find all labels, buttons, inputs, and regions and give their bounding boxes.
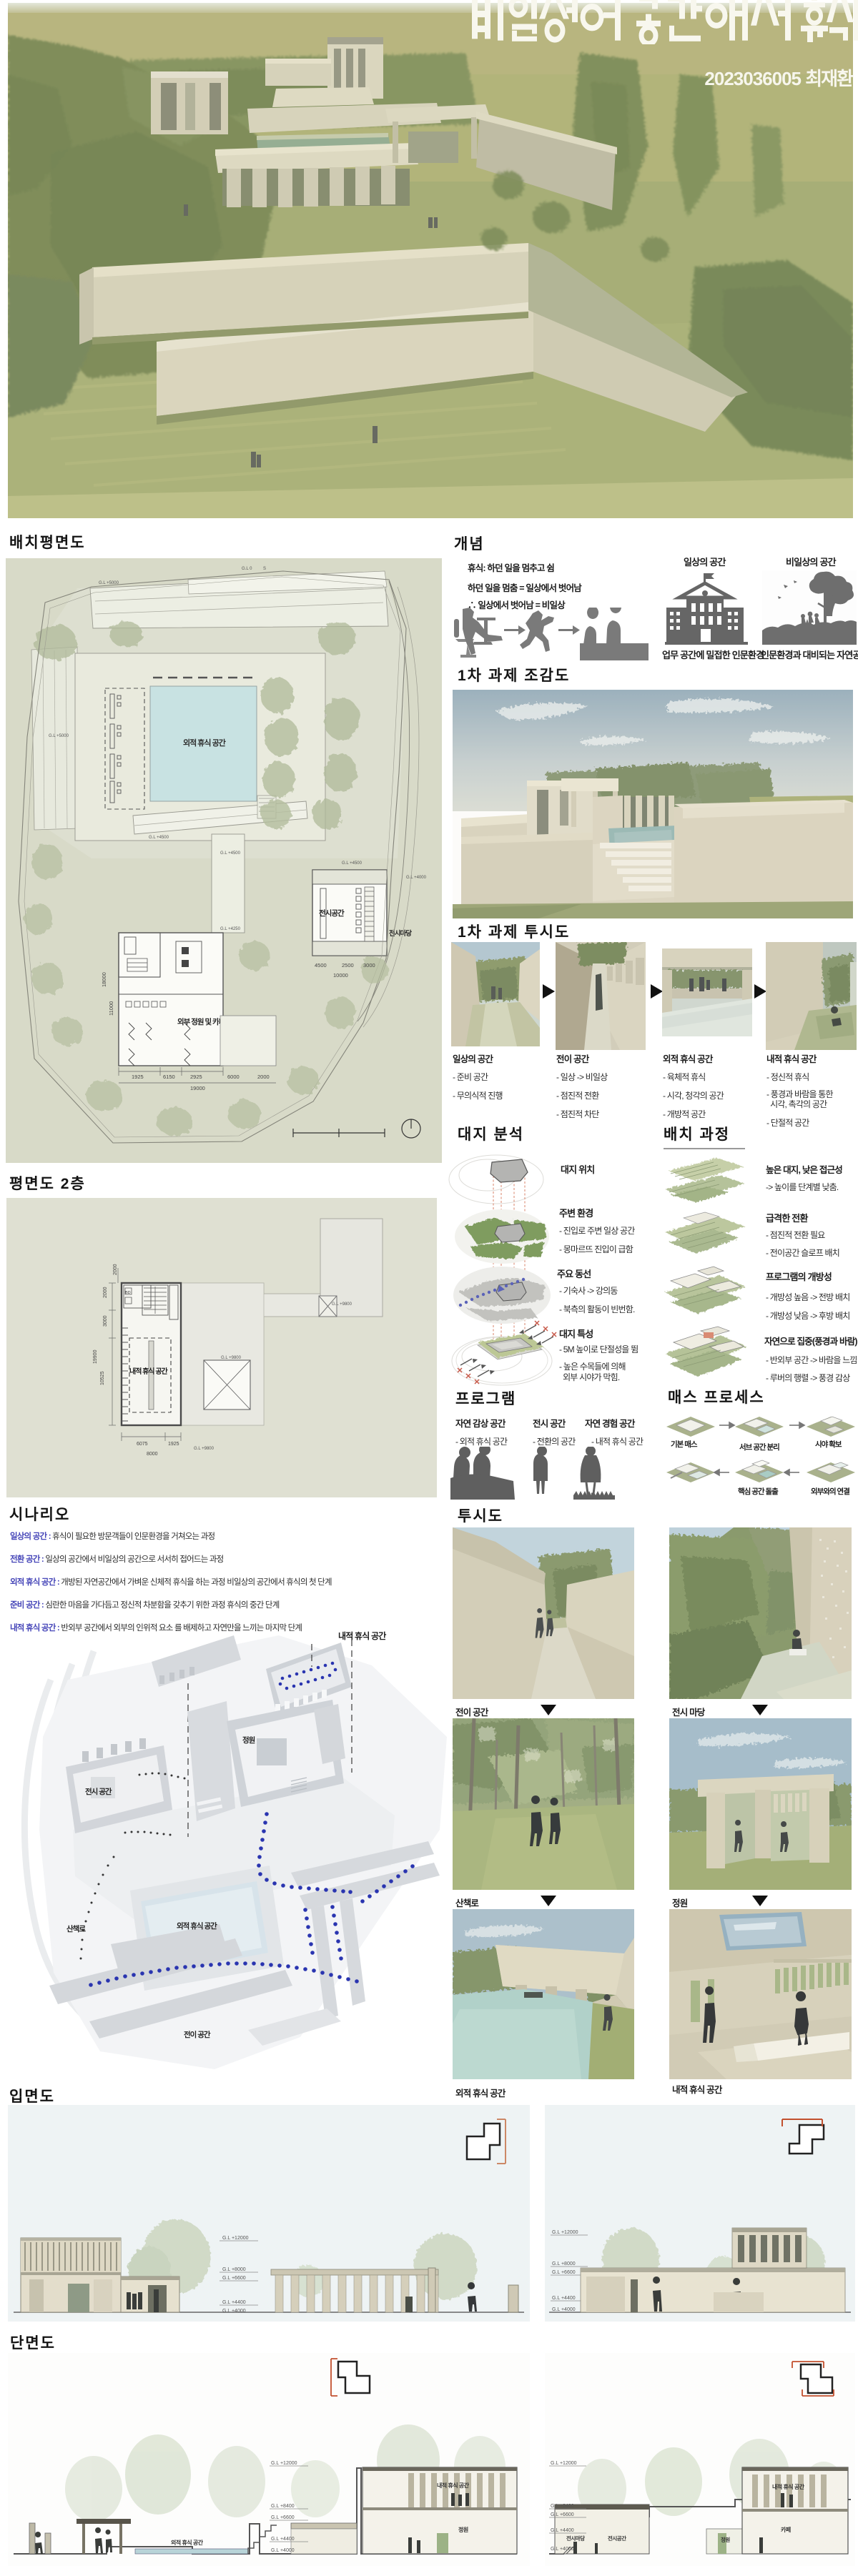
svg-text:G.L +9800: G.L +9800 <box>332 1302 352 1307</box>
svg-text:G.L +4500: G.L +4500 <box>342 861 363 866</box>
svg-text:전이 공간: 전이 공간 <box>184 2030 211 2039</box>
svg-text:BD: BD <box>125 1291 131 1295</box>
svg-text:외적 휴식 공간: 외적 휴식 공간 <box>177 1921 217 1931</box>
svg-text:내적 휴식 공간: 내적 휴식 공간 <box>129 1367 169 1376</box>
svg-text:전시공간: 전시공간 <box>319 908 345 918</box>
svg-text:G.L +5000: G.L +5000 <box>99 581 119 585</box>
svg-text:G.L +12000: G.L +12000 <box>271 2461 297 2466</box>
svg-text:10525: 10525 <box>100 1371 105 1385</box>
svg-text:핵심 공간 돌출: 핵심 공간 돌출 <box>738 1487 779 1496</box>
svg-text:2000: 2000 <box>113 1264 118 1275</box>
svg-text:G.L +4000: G.L +4000 <box>552 2307 576 2312</box>
svg-text:G.L +12000: G.L +12000 <box>552 2230 578 2235</box>
svg-text:G.L +4000: G.L +4000 <box>271 2548 295 2553</box>
svg-text:외부와의 연결: 외부와의 연결 <box>811 1487 849 1496</box>
svg-text:서브 공간 분리: 서브 공간 분리 <box>739 1442 779 1452</box>
svg-text:G.L +6600: G.L +6600 <box>222 2276 246 2281</box>
svg-text:6075: 6075 <box>137 1442 148 1447</box>
svg-text:G.L +9800: G.L +9800 <box>221 1356 242 1360</box>
svg-text:G.L +9800: G.L +9800 <box>194 1447 214 1451</box>
svg-text:G.L +4250: G.L +4250 <box>220 927 241 931</box>
svg-text:11000: 11000 <box>108 1001 114 1016</box>
svg-text:내적 휴식 공간: 내적 휴식 공간 <box>772 2483 805 2490</box>
svg-text:G.L +8000: G.L +8000 <box>222 2267 246 2272</box>
svg-text:G.L +6600: G.L +6600 <box>551 2512 574 2517</box>
svg-text:산책로: 산책로 <box>66 1924 86 1933</box>
svg-text:G.L +5000: G.L +5000 <box>49 734 69 738</box>
svg-text:6150: 6150 <box>163 1074 175 1080</box>
svg-text:G.L +4500: G.L +4500 <box>149 836 169 840</box>
svg-text:1925: 1925 <box>132 1074 144 1080</box>
svg-text:G.L +4000: G.L +4000 <box>551 2547 574 2552</box>
svg-text:G.L +4400: G.L +4400 <box>222 2300 246 2305</box>
svg-text:19000: 19000 <box>190 1085 205 1091</box>
svg-text:외적 휴식 공간: 외적 휴식 공간 <box>183 738 226 748</box>
svg-text:G.L 0: G.L 0 <box>242 567 252 571</box>
svg-text:19900: 19900 <box>93 1349 98 1364</box>
svg-text:G.L +8000: G.L +8000 <box>552 2262 576 2267</box>
svg-text:S: S <box>263 567 266 571</box>
svg-text:G.L +8400: G.L +8400 <box>271 2504 295 2509</box>
svg-text:내적 휴식 공간: 내적 휴식 공간 <box>437 2482 470 2489</box>
svg-text:3000: 3000 <box>103 1315 108 1327</box>
svg-text:G.L +4400: G.L +4400 <box>551 2528 574 2533</box>
svg-text:전시마당: 전시마당 <box>566 2535 585 2542</box>
svg-text:4500: 4500 <box>315 962 327 969</box>
svg-text:G.L +6600: G.L +6600 <box>552 2270 576 2275</box>
svg-text:G.L +4500: G.L +4500 <box>220 851 241 856</box>
svg-text:10000: 10000 <box>333 972 348 979</box>
svg-text:외적 휴식 공간: 외적 휴식 공간 <box>171 2539 204 2546</box>
svg-text:시야 확보: 시야 확보 <box>815 1440 842 1449</box>
svg-text:6000: 6000 <box>227 1074 240 1080</box>
svg-text:3000: 3000 <box>363 962 375 969</box>
svg-text:G.L +4400: G.L +4400 <box>271 2537 295 2542</box>
svg-text:2925: 2925 <box>190 1074 202 1080</box>
svg-text:G.L +12000: G.L +12000 <box>551 2461 577 2466</box>
svg-text:G.L +4000: G.L +4000 <box>406 876 427 880</box>
svg-text:8000: 8000 <box>147 1452 158 1457</box>
svg-text:정원: 정원 <box>458 2526 468 2533</box>
svg-text:G.L +8400: G.L +8400 <box>551 2504 574 2509</box>
svg-text:전시공간: 전시공간 <box>608 2535 626 2542</box>
svg-text:G.L +4400: G.L +4400 <box>552 2296 576 2301</box>
svg-text:기본 매스: 기본 매스 <box>671 1440 698 1449</box>
svg-text:G.L +4000: G.L +4000 <box>222 2309 246 2314</box>
svg-text:2500: 2500 <box>342 962 354 969</box>
svg-text:외부 정원 및 카페: 외부 정원 및 카페 <box>177 1017 225 1026</box>
svg-text:1925: 1925 <box>168 1442 179 1447</box>
svg-text:카페: 카페 <box>781 2526 791 2533</box>
svg-text:2000: 2000 <box>257 1074 270 1080</box>
svg-text:정원: 정원 <box>242 1735 255 1745</box>
svg-text:2000: 2000 <box>103 1287 108 1298</box>
svg-text:G.L +12000: G.L +12000 <box>222 2236 249 2241</box>
svg-text:정원: 정원 <box>721 2536 730 2543</box>
svg-text:전시 공간: 전시 공간 <box>85 1787 112 1796</box>
svg-text:전시마당: 전시마당 <box>389 929 412 938</box>
svg-text:G.L +6600: G.L +6600 <box>271 2515 295 2520</box>
svg-text:18000: 18000 <box>101 972 107 987</box>
